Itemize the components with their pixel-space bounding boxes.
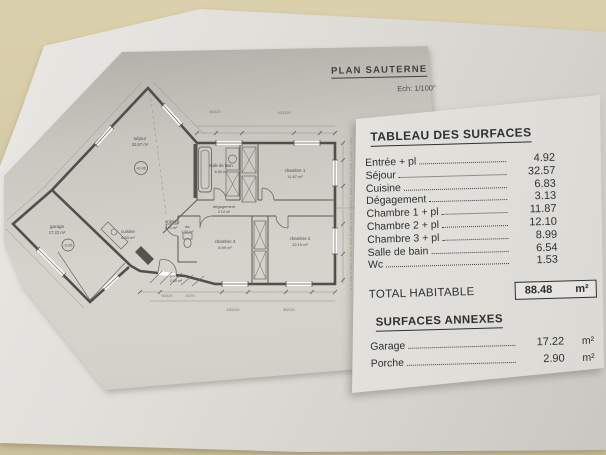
surfaces-rows: Entrée + pl4.92 Séjour32.57 Cuisine6.83 … [365, 151, 596, 272]
row-value: 8.99 [511, 228, 557, 241]
dots-leader [442, 238, 508, 241]
row-value: 12.10 [511, 216, 557, 229]
row-label: Cuisine [366, 182, 401, 195]
dots-leader [404, 187, 507, 191]
surfaces-table: TABLEAU DES SURFACES Entrée + pl4.92 Séj… [364, 116, 599, 375]
dots-leader [419, 161, 506, 164]
row-value: 11.87 [510, 203, 556, 216]
row-value: 6.54 [511, 241, 557, 254]
row-label: Chambre 2 + pl [367, 219, 439, 233]
dots-leader [442, 212, 508, 215]
dots-leader [431, 251, 508, 254]
dots-leader [408, 345, 515, 349]
row-label: Salle de bain [367, 245, 428, 259]
dots-leader [407, 362, 516, 366]
total-habitable-row: TOTAL HABITABLE 88.48 m² [369, 280, 597, 304]
annex-rows: Garage17.22m² Porche2.90m² [370, 335, 599, 375]
total-label: TOTAL HABITABLE [369, 286, 475, 301]
dots-leader [399, 174, 507, 178]
dots-leader [429, 199, 507, 202]
row-unit: m² [565, 352, 595, 365]
row-label: Chambre 1 + pl [366, 206, 438, 220]
row-label: Entrée + pl [365, 156, 416, 169]
total-value: 88.48 [525, 284, 553, 297]
row-value: 4.92 [509, 152, 555, 165]
annex-title: SURFACES ANNEXES [375, 313, 503, 332]
dots-leader [442, 225, 508, 228]
row-value: 3.13 [510, 190, 556, 203]
row-value: 6.83 [510, 177, 556, 190]
row-label: Dégagement [366, 194, 426, 208]
row-label: Wc [368, 259, 384, 271]
dots-leader [386, 263, 509, 267]
row-value: 2.90 [519, 353, 565, 366]
row-label: Garage [370, 340, 405, 353]
row-label: Chambre 3 + pl [367, 232, 439, 246]
row-value: 17.22 [518, 336, 564, 349]
row-value: 32.57 [509, 164, 555, 177]
row-label: Porche [371, 357, 405, 370]
total-unit: m² [575, 283, 589, 295]
row-value: 1.53 [512, 254, 558, 267]
row-unit: m² [564, 335, 594, 348]
total-value-box: 88.48 m² [515, 280, 597, 300]
photo-of-floor-plan-document: PLAN SAUTERNE Ech: 1/100° [0, 0, 606, 455]
surfaces-table-title: TABLEAU DES SURFACES [370, 125, 532, 146]
row-label: Séjour [365, 169, 396, 182]
